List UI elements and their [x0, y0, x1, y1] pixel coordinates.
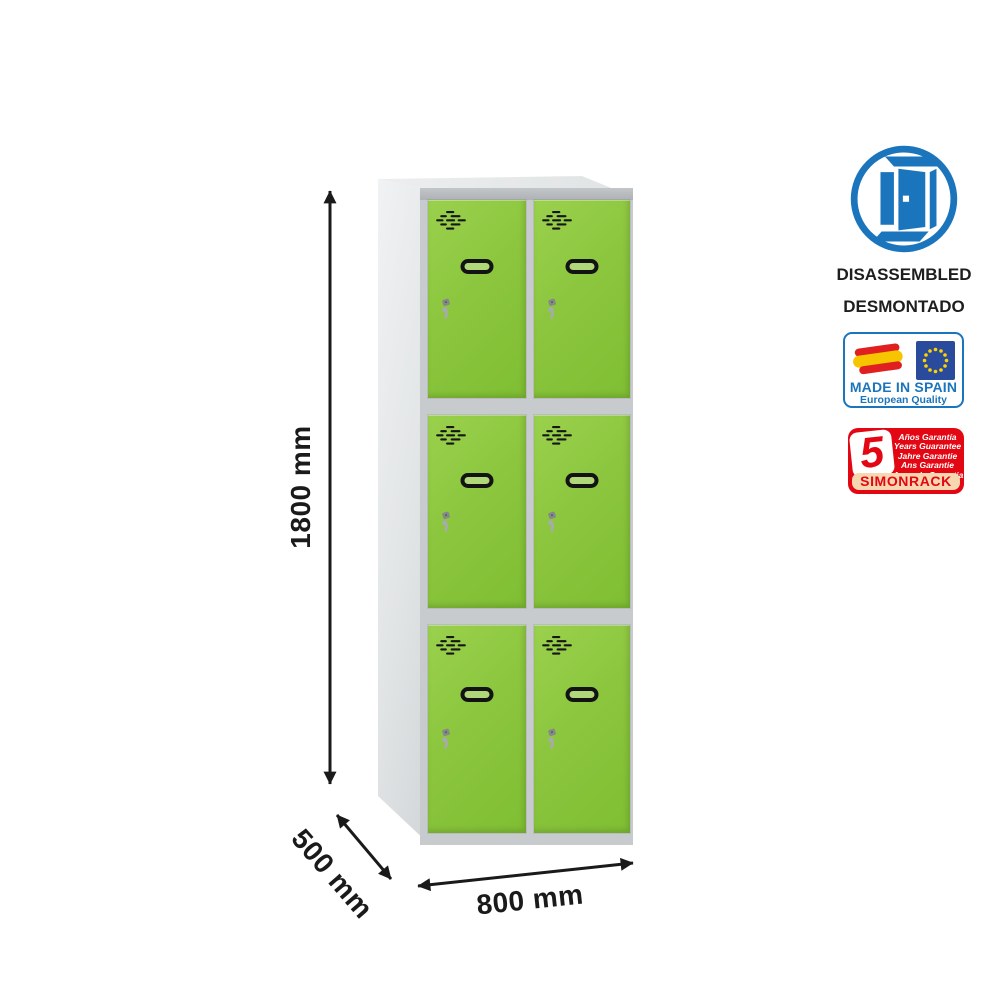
- lock-and-key-icon: [440, 727, 452, 751]
- locker-door: [534, 625, 630, 833]
- lock-and-key-icon: [546, 727, 558, 751]
- guarantee-badge: 5 Años Garantía Years Guarantee Jahre Ga…: [848, 428, 964, 494]
- vent-icon: [436, 636, 466, 655]
- locker-door: [534, 200, 630, 398]
- disassembled-door-icon: [848, 143, 960, 255]
- guarantee-years: 5: [858, 428, 887, 478]
- locker-base: [420, 188, 633, 200]
- made-in-spain-badge: MADE IN SPAIN European Quality: [843, 332, 964, 408]
- width-dimension-label: 800 mm: [475, 878, 585, 921]
- guarantee-years-panel: 5: [849, 429, 895, 478]
- door-handle: [566, 473, 599, 488]
- locker-door: [428, 625, 526, 833]
- door-handle: [461, 687, 494, 702]
- width-arrow: [418, 863, 633, 886]
- vent-icon: [436, 211, 466, 230]
- locker-front: [420, 188, 633, 845]
- locker-door: [428, 200, 526, 398]
- product-image: 1800 mm 500 mm 800 mm DISASSEMBLED DESMO…: [0, 0, 1000, 1000]
- door-handle: [566, 259, 599, 274]
- lock-and-key-icon: [440, 297, 452, 321]
- height-dimension-label: 1800 mm: [285, 425, 317, 548]
- vent-icon: [542, 211, 572, 230]
- made-in-spain-subtitle: European Quality: [845, 394, 962, 406]
- guarantee-brand: SIMONRACK: [852, 473, 960, 490]
- door-handle: [461, 259, 494, 274]
- lock-and-key-icon: [546, 510, 558, 534]
- vent-icon: [542, 426, 572, 445]
- locker-door: [534, 415, 630, 608]
- vent-icon: [542, 636, 572, 655]
- lock-and-key-icon: [440, 510, 452, 534]
- door-handle: [566, 687, 599, 702]
- disassembled-label-en: DISASSEMBLED: [824, 263, 984, 287]
- lock-and-key-icon: [546, 297, 558, 321]
- spain-flag-icon: [851, 343, 905, 377]
- disassembled-badge: DISASSEMBLED DESMONTADO: [824, 143, 984, 319]
- vent-icon: [436, 426, 466, 445]
- door-handle: [461, 473, 494, 488]
- eu-flag-icon: [916, 341, 955, 380]
- locker-door: [428, 415, 526, 608]
- disassembled-label-es: DESMONTADO: [824, 295, 984, 319]
- depth-dimension-label: 500 mm: [285, 823, 380, 925]
- made-in-spain-title: MADE IN SPAIN: [845, 379, 962, 395]
